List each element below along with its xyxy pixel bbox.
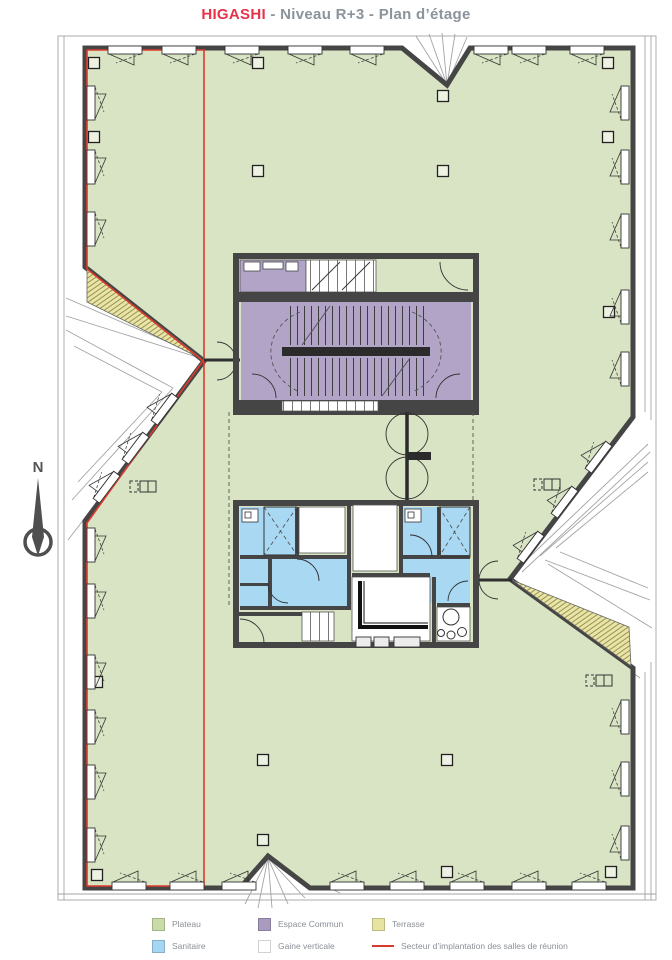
legend-label: Secteur d’implantation des salles de réu… [401, 941, 568, 951]
north-label: N [33, 459, 44, 476]
plateau-swatch [152, 918, 165, 931]
espace-commun-swatch [258, 918, 271, 931]
legend-label: Espace Commun [278, 919, 343, 929]
legend-item-sanitaire: Sanitaire [152, 939, 206, 953]
legend-label: Sanitaire [172, 941, 206, 951]
title-subtitle: - Niveau R+3 - Plan d’étage [266, 6, 471, 23]
legend-item-terrasse: Terrasse [372, 917, 425, 931]
legend-item-plateau: Plateau [152, 917, 201, 931]
legend: Plateau Sanitaire Espace Commun Gaine ve… [0, 912, 672, 960]
legend-label: Gaine verticale [278, 941, 335, 951]
secteur-line-chip [372, 945, 394, 947]
legend-item-espace-commun: Espace Commun [258, 917, 343, 931]
sanitaire-swatch [152, 940, 165, 953]
legend-item-secteur: Secteur d’implantation des salles de réu… [372, 939, 568, 953]
floor-plan-drawing: N [0, 28, 672, 912]
north-compass: N [25, 459, 51, 556]
legend-label: Plateau [172, 919, 201, 929]
page-title: HIGASHI - Niveau R+3 - Plan d’étage [0, 6, 672, 23]
terrasse-swatch [372, 918, 385, 931]
floor-plate [85, 48, 633, 888]
legend-label: Terrasse [392, 919, 425, 929]
title-brand: HIGASHI [201, 6, 266, 23]
legend-item-gaine-verticale: Gaine verticale [258, 939, 335, 953]
gaine-verticale-swatch [258, 940, 271, 953]
